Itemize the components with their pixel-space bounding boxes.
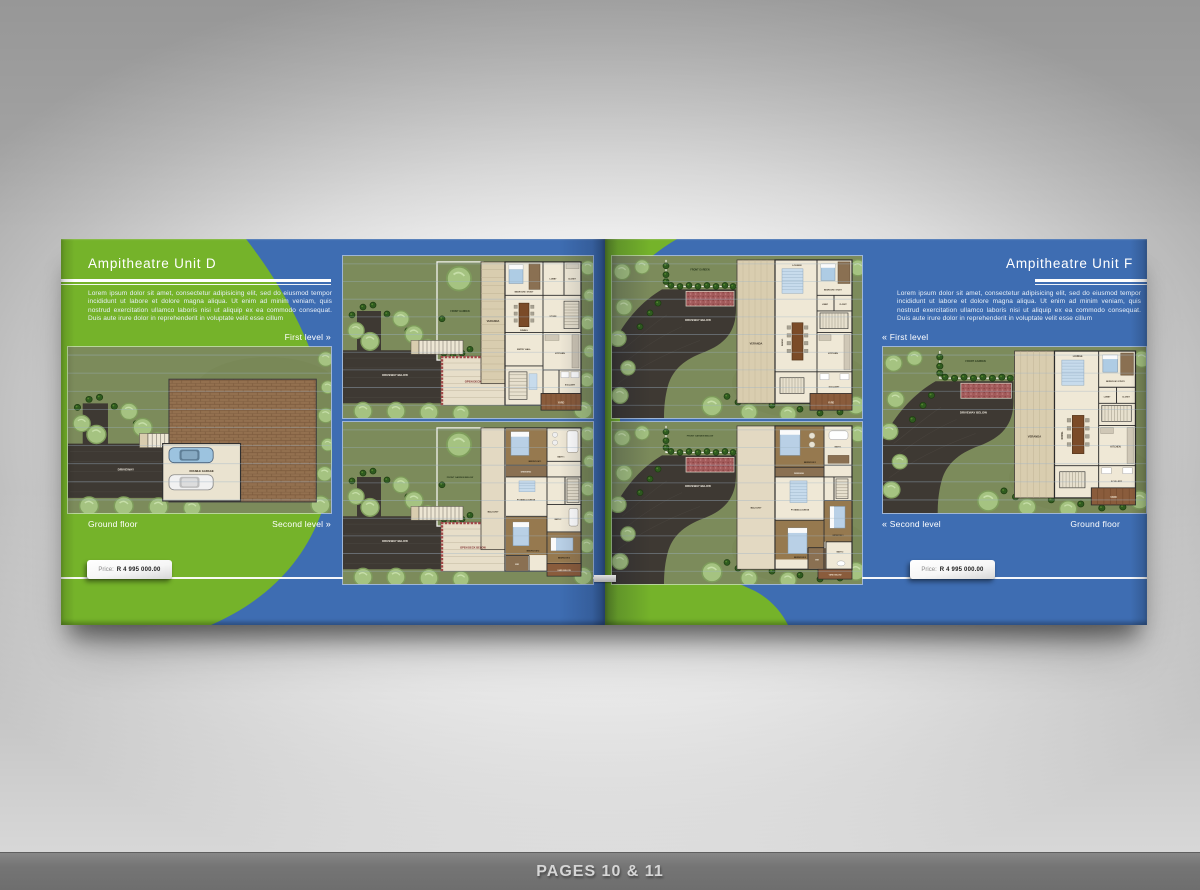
svg-text:DRIVEWAY BELOW: DRIVEWAY BELOW <box>382 373 408 377</box>
second-level-plan-unit-f: FRONT GARDEN BELOW DRIVEWAY BELOW <box>612 422 862 584</box>
svg-text:OPEN DECK: OPEN DECK <box>465 380 482 384</box>
car-blue <box>169 448 213 463</box>
ground-floor-label: Ground floor <box>88 519 138 529</box>
chevron-left-icon: « <box>882 519 887 529</box>
svg-text:OPEN DECK BELOW: OPEN DECK BELOW <box>460 546 486 550</box>
svg-text:DRIVEWAY BELOW: DRIVEWAY BELOW <box>685 484 711 488</box>
car-white <box>169 475 213 490</box>
price-value: R 4 995 000.00 <box>940 567 984 573</box>
svg-text:DRIVEWAY BELOW: DRIVEWAY BELOW <box>382 539 408 543</box>
page-left-unit-d: Ampitheatre Unit D Lorem ipsum dolor sit… <box>61 239 605 625</box>
second-level-label: « Second level <box>882 519 941 529</box>
price-label: Price: <box>98 567 113 573</box>
svg-text:FRONT GARDEN: FRONT GARDEN <box>965 360 986 363</box>
chevron-right-icon: » <box>326 519 331 529</box>
ground-floor-plan-unit-d: DRIVEWAY DOUBLE GARAGE <box>68 347 331 513</box>
footer-caption: PAGES 10 & 11 <box>536 863 663 881</box>
price-value: R 4 995 000.00 <box>117 567 161 573</box>
brochure-spread: Ampitheatre Unit D Lorem ipsum dolor sit… <box>61 239 1147 625</box>
unit-description: Lorem ipsum dolor sit amet, consectetur … <box>897 290 1141 324</box>
svg-text:FRONT GARDEN: FRONT GARDEN <box>450 310 469 313</box>
svg-text:FRONT GARDEN BELOW: FRONT GARDEN BELOW <box>687 435 714 438</box>
second-level-label: Second level » <box>272 519 331 529</box>
stage-background: Ampitheatre Unit D Lorem ipsum dolor sit… <box>0 0 1200 890</box>
title-rule <box>1035 279 1147 285</box>
page-title: Ampitheatre Unit F <box>1006 256 1133 271</box>
svg-text:FRONT GARDEN BELOW: FRONT GARDEN BELOW <box>447 476 474 479</box>
first-level-label: « First level <box>882 332 928 342</box>
svg-text:DRIVEWAY BELOW: DRIVEWAY BELOW <box>960 410 987 414</box>
ground-floor-label: Ground floor <box>1070 519 1120 529</box>
footer-bar: PAGES 10 & 11 <box>0 852 1200 890</box>
page-right-unit-f: Ampitheatre Unit F Lorem ipsum dolor sit… <box>605 239 1147 625</box>
title-rule <box>61 279 331 285</box>
ground-floor-plan-unit-f: FRONT GARDEN DRIVEWAY BELOW <box>883 347 1146 513</box>
svg-text:FRONT GARDEN: FRONT GARDEN <box>690 269 709 272</box>
price-badge: Price: R 4 995 000.00 <box>910 560 995 579</box>
first-level-label: First level » <box>285 332 331 342</box>
unit-description: Lorem ipsum dolor sit amet, consectetur … <box>88 290 332 324</box>
svg-text:DRIVEWAY: DRIVEWAY <box>118 468 134 472</box>
second-level-plan-unit-d: FRONT GARDEN BELOW OPEN DECK BELOW DRIVE… <box>343 422 593 584</box>
chevron-right-icon: » <box>326 332 331 342</box>
svg-text:DRIVEWAY BELOW: DRIVEWAY BELOW <box>685 318 711 322</box>
page-title: Ampitheatre Unit D <box>88 256 216 271</box>
price-badge: Price: R 4 995 000.00 <box>87 560 172 579</box>
first-level-plan-unit-f: FRONT GARDEN DRIVEWAY BELOW <box>612 256 862 418</box>
svg-text:DOUBLE GARAGE: DOUBLE GARAGE <box>190 469 214 473</box>
fold-tab <box>594 575 616 582</box>
chevron-left-icon: « <box>882 332 887 342</box>
first-level-plan-unit-d: FRONT GARDEN OPEN DECK DRIVEWAY BELOW <box>343 256 593 418</box>
price-label: Price: <box>921 567 936 573</box>
